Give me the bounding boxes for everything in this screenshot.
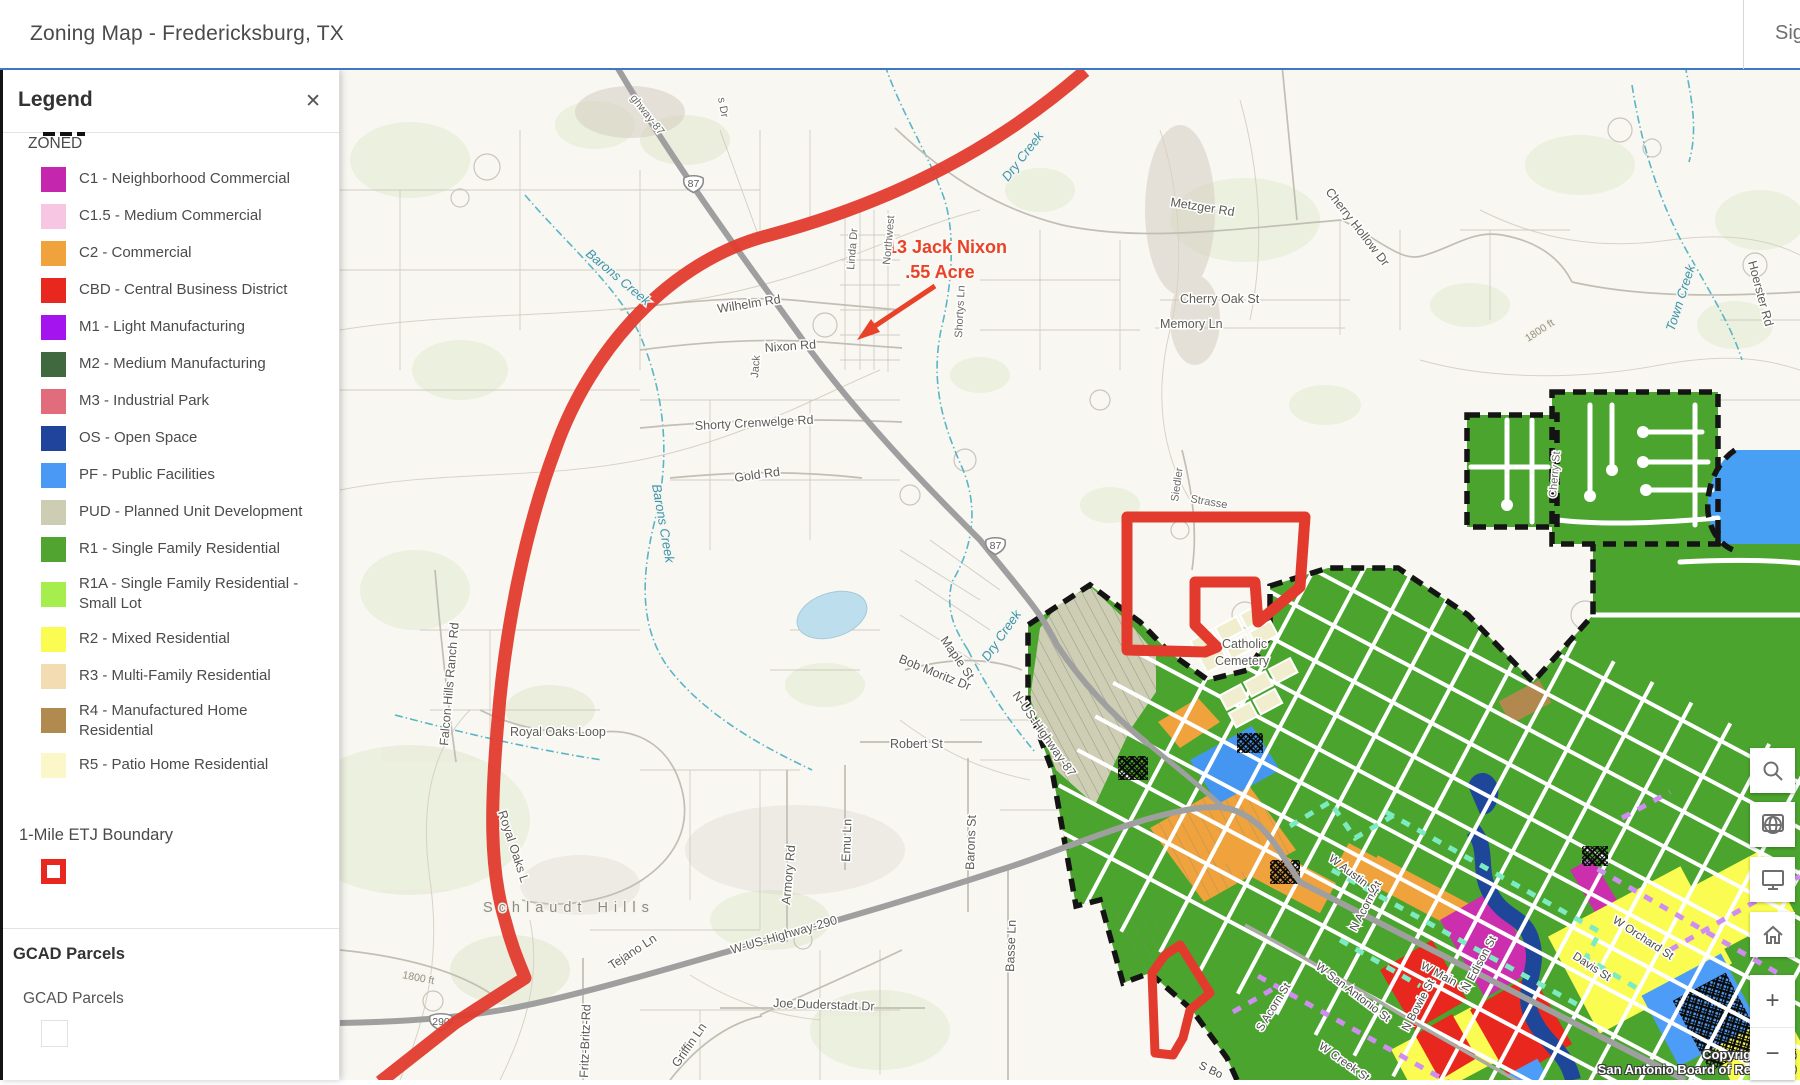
basemap-button[interactable] [1750,802,1795,847]
swatch-cbd [41,278,66,303]
label-royal-oaks-loop: Royal Oaks Loop [510,725,606,739]
zoom-in-button[interactable]: + [1750,975,1795,1027]
legend-item: CBD - Central Business District [3,272,339,309]
legend-item: C1.5 - Medium Commercial [3,198,339,235]
label-robert-st: Robert St [890,737,943,751]
etj-section-label: 1-Mile ETJ Boundary [19,826,339,845]
legend-item: PF - Public Facilities [3,457,339,494]
gcad-sublabel: GCAD Parcels [23,990,339,1008]
legend-item: M3 - Industrial Park [3,383,339,420]
sign-in-link[interactable]: Sig [1775,22,1800,45]
etj-swatch [41,859,66,884]
legend-item: C1 - Neighborhood Commercial [3,161,339,198]
zone-r1-block-a [1467,415,1557,527]
search-icon [1761,759,1785,783]
gcad-swatch [41,1020,68,1047]
app-header: Zoning Map - Fredericksburg, TX Sig [0,0,1800,70]
page-title: Zoning Map - Fredericksburg, TX [30,22,344,46]
swatch-r2 [41,627,66,652]
legend-item: R2 - Mixed Residential [3,621,339,658]
header-divider [1743,0,1744,69]
swatch-m2 [41,352,66,377]
swatch-pf [41,463,66,488]
swatch-r3 [41,664,66,689]
zoom-out-button[interactable]: − [1750,1028,1795,1080]
map-canvas[interactable]: 87 87 290 13 Jack Nixon .55 Acre ghway-8… [340,70,1800,1080]
legend-item: OS - Open Space [3,420,339,457]
legend-section-zoned: ZONED [28,135,339,153]
swatch-c1 [41,167,66,192]
legend-item: PUD - Planned Unit Development [3,494,339,531]
map-svg: 87 87 290 13 Jack Nixon .55 Acre ghway-8… [340,70,1800,1080]
legend-item: R3 - Multi-Family Residential [3,658,339,695]
label-fritz-britz-rd: Fritz-Britz-Rd [577,1004,594,1078]
scrolled-item-remnant [43,123,339,127]
screen-button[interactable] [1750,857,1795,902]
swatch-r1a [41,582,66,607]
legend-panel: Legend ✕ ZONED C1 - Neighborhood Commerc… [0,70,339,1080]
legend-item: R4 - Manufactured Home Residential [3,695,339,748]
legend-item: M2 - Medium Manufacturing [3,346,339,383]
search-button[interactable] [1750,748,1795,793]
zoom-controls: + − [1750,975,1795,1080]
home-button[interactable] [1750,912,1795,957]
swatch-r5 [41,753,66,778]
label-basse-ln: Basse Ln [1003,919,1019,972]
swatch-pud [41,500,66,525]
label-jack: Jack [749,354,763,378]
label-emu-ln: Emu Ln [839,819,854,863]
label-cherry-oak-st: Cherry Oak St [1180,292,1260,306]
legend-items: C1 - Neighborhood Commercial C1.5 - Medi… [3,161,339,784]
legend-item: R1 - Single Family Residential [3,531,339,568]
swatch-r4 [41,708,66,733]
monitor-icon [1760,868,1786,892]
home-icon [1760,923,1786,947]
swatch-m1 [41,315,66,340]
legend-item: M1 - Light Manufacturing [3,309,339,346]
swatch-c2 [41,241,66,266]
swatch-m3 [41,389,66,414]
shield-87-top: 87 [688,178,700,190]
annotation-line2: .55 Acre [905,262,974,282]
label-catholic: Catholic [1222,637,1267,651]
swatch-c15 [41,204,66,229]
label-barons-st: Barons St [963,814,979,870]
annotation-line1: 13 Jack Nixon [887,237,1007,257]
legend-item: R1A - Single Family Residential - Small … [3,568,339,621]
label-cemetery: Cemetery [1215,654,1270,668]
basemap-icon [1760,812,1786,838]
close-icon[interactable]: ✕ [305,92,321,111]
zone-pf-pond [1708,450,1800,551]
legend-item: C2 - Commercial [3,235,339,272]
label-schlaudt-hills: Schlaudt Hills [483,900,655,916]
swatch-os [41,426,66,451]
legend-title: Legend [18,88,93,112]
shield-87-mid: 87 [990,540,1002,552]
label-memory-ln: Memory Ln [1160,317,1223,331]
gcad-section-header: GCAD Parcels [13,945,339,964]
gcad-divider [3,928,339,929]
swatch-r1 [41,537,66,562]
legend-item: R5 - Patio Home Residential [3,747,339,784]
